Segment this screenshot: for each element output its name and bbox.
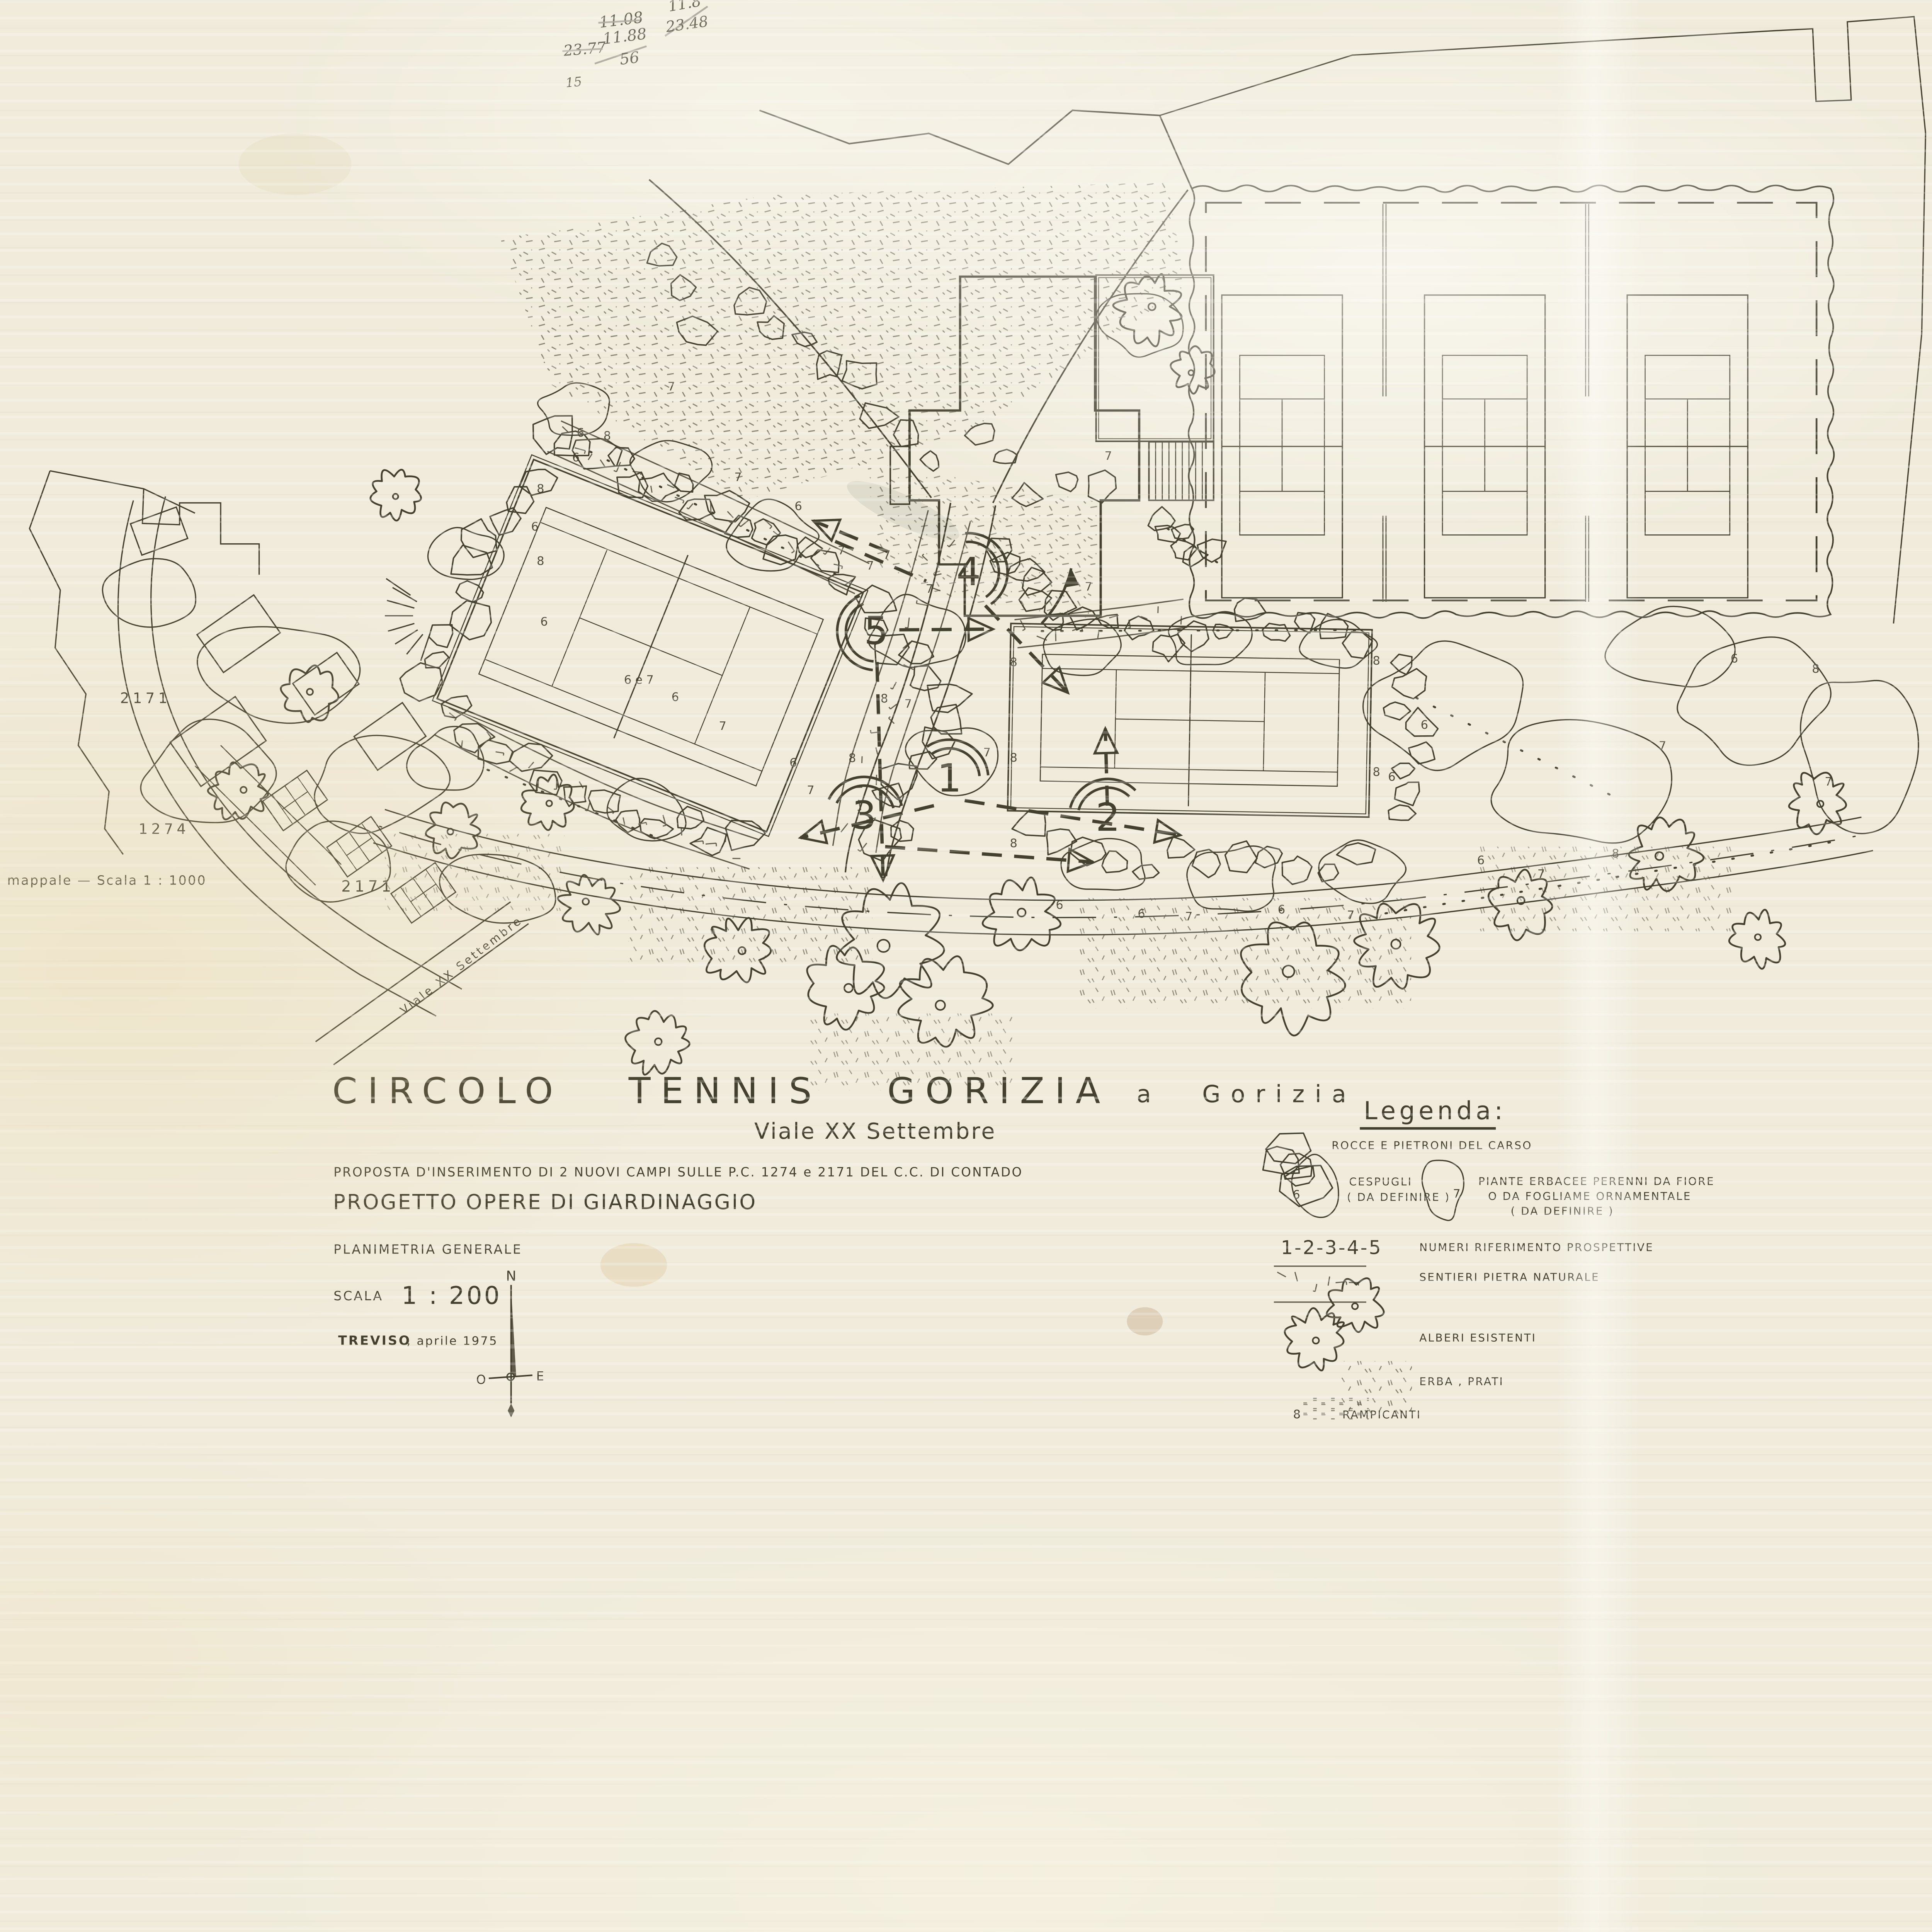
existing-tennis-courts xyxy=(1222,295,1748,598)
plant-ref-number: 8 xyxy=(537,554,544,568)
planting-bed xyxy=(1299,619,1377,668)
planting-bed xyxy=(141,719,276,822)
plant-ref-number: 8 xyxy=(1372,765,1380,779)
legend-erba: ERBA , PRATI xyxy=(1419,1375,1504,1388)
proposal-line: PROPOSTA D'INSERIMENTO DI 2 NUOVI CAMPI … xyxy=(333,1165,1023,1179)
plant-ref-number: 6 xyxy=(1138,907,1145,921)
scanned-site-plan: 12345 68686866 e 76767767787887888686676… xyxy=(0,0,1932,1932)
legend-sentieri: SENTIERI PIETRA NATURALE xyxy=(1419,1271,1600,1284)
plant-ref-number: 7 xyxy=(983,746,990,760)
tree-symbol xyxy=(281,665,338,722)
legend-heading: Legenda: xyxy=(1364,1097,1506,1125)
legend-num7: 7 xyxy=(1453,1187,1460,1201)
legend-piante2: O DA FOGLIAME ORNAMENTALE xyxy=(1488,1190,1691,1202)
legend-alberi: ALBERI ESISTENTI xyxy=(1419,1331,1536,1344)
plant-ref-number: 7 xyxy=(807,784,814,797)
planting-bed xyxy=(1801,680,1918,833)
subtitle: Viale XX Settembre xyxy=(754,1119,996,1144)
tree-symbol xyxy=(1285,1308,1344,1370)
plant-ref-number: 6 xyxy=(540,615,548,629)
inset-caption: mappale — Scala 1 : 1000 xyxy=(7,873,207,888)
plant-ref-number: 8 xyxy=(1372,654,1380,668)
planting-bed xyxy=(607,779,686,841)
plant-ref-number: 6 xyxy=(1056,898,1063,912)
city-label: TREVISO xyxy=(338,1333,411,1348)
plant-ref-number: 8 xyxy=(881,692,888,706)
ground-textures xyxy=(385,182,1732,1420)
legend-nums: 1-2-3-4-5 xyxy=(1281,1236,1383,1259)
plant-ref-number: 8 xyxy=(1010,656,1017,669)
legend-piante3: ( DA DEFINIRE ) xyxy=(1511,1204,1614,1217)
building xyxy=(131,507,188,555)
plant-ref-number: 8 xyxy=(1612,847,1619,861)
plant-ref-number: 7 xyxy=(734,471,742,484)
plant-ref-number: 6 xyxy=(672,690,679,704)
legend-cespugli: CESPUGLI xyxy=(1349,1175,1412,1188)
sightline-dashed xyxy=(965,801,1180,835)
compass-e: E xyxy=(536,1369,544,1383)
perspective-number: 2 xyxy=(1096,796,1120,840)
project-line: PROGETTO OPERE DI GIARDINAGGIO xyxy=(333,1190,757,1214)
plant-ref-number: 8 xyxy=(1010,837,1017,850)
plant-ref-number: 7 xyxy=(719,719,726,733)
legend-cespugli2: ( DA DEFINIRE ) xyxy=(1347,1191,1451,1204)
planting-bed xyxy=(102,559,196,627)
legend-numeri: NUMERI RIFERIMENTO PROSPETTIVE xyxy=(1419,1241,1654,1254)
legend-num8: 8 xyxy=(1293,1408,1301,1420)
legend-rocce: ROCCE E PIETRONI DEL CARSO xyxy=(1332,1139,1532,1151)
ray-hatch xyxy=(385,578,429,660)
plant-ref-number: 7 xyxy=(1085,580,1092,594)
plant-ref-number: 6 xyxy=(531,520,538,534)
pencil-note: 56 xyxy=(619,48,640,68)
plant-ref-number: 6 xyxy=(1731,652,1738,665)
pencil-notes: 23.7711.0811.88561511.823.48 xyxy=(562,0,709,90)
planting-bed xyxy=(1491,719,1672,843)
sightline-dashed xyxy=(899,629,993,630)
mini-court xyxy=(263,770,328,831)
parcel-number: 2171 xyxy=(341,878,395,895)
scale-value: 1 : 200 xyxy=(401,1281,502,1310)
pencil-note: 15 xyxy=(565,74,582,90)
planting-bed xyxy=(315,735,450,833)
plant-ref-number: 6 xyxy=(1421,718,1428,732)
legend-num6: 6 xyxy=(1293,1188,1300,1202)
main-title: CIRCOLO TENNIS GORIZIA xyxy=(332,1070,1111,1112)
plant-ref-number: 6 xyxy=(577,426,584,440)
planting-bed xyxy=(1319,840,1406,903)
tree-symbol xyxy=(558,875,620,934)
planting-bed xyxy=(197,627,360,723)
plant-ref-number: 7 xyxy=(668,380,675,394)
compass-o: O xyxy=(476,1372,486,1387)
tree-symbol xyxy=(625,1011,689,1075)
plant-ref-number: 7 xyxy=(1659,739,1666,753)
new-tennis-court-east xyxy=(1008,624,1372,817)
plan-type-line: PLANIMETRIA GENERALE xyxy=(333,1242,522,1257)
planting-bed xyxy=(726,499,819,571)
building xyxy=(197,595,280,673)
planting-bed xyxy=(428,527,504,579)
sightline-dashed xyxy=(1105,729,1107,806)
plant-ref-number: 7 xyxy=(905,697,912,711)
perspective-number: 3 xyxy=(852,794,876,838)
plant-ref-number: 7 xyxy=(838,544,845,557)
plant-ref-number: 6 xyxy=(1477,854,1485,867)
plant-ref-number: 6 xyxy=(789,756,797,770)
plant-ref-number: 7 xyxy=(1185,910,1192,923)
plant-ref-number: 7 xyxy=(1825,775,1832,789)
plant-ref-number: 8 xyxy=(604,429,611,443)
plant-ref-number: 7 xyxy=(1537,867,1545,881)
perspective-number: 5 xyxy=(864,609,888,653)
plant-ref-number: 6 xyxy=(1278,903,1285,917)
perspective-number: 1 xyxy=(937,756,961,801)
site-plan-drawing: 12345 68686866 e 76767767787887888686676… xyxy=(0,0,1932,1420)
plant-ref-number: 7 xyxy=(883,548,891,562)
tree-symbol xyxy=(371,470,421,521)
plant-ref-number: 8 xyxy=(1812,662,1819,676)
hedge-border xyxy=(1189,185,1834,618)
existing-courts-enclosure xyxy=(1189,185,1834,618)
perspective-number: 4 xyxy=(956,550,981,594)
fence-dashed xyxy=(1206,203,1816,600)
plant-ref-number: 7 xyxy=(926,582,933,596)
planting-bed xyxy=(1605,606,1735,687)
tree-symbol xyxy=(208,762,268,820)
new-tennis-court-west xyxy=(432,455,868,836)
plant-ref-number: 6 e 7 xyxy=(624,673,654,687)
plant-ref-number: 8 xyxy=(537,482,544,496)
tree-symbol xyxy=(983,878,1061,951)
plant-ref-number: 7 xyxy=(1105,449,1112,463)
building xyxy=(293,653,359,715)
plant-ref-number: 7 xyxy=(1347,908,1354,922)
plant-ref-number: 8 xyxy=(849,752,856,765)
pencil-note: 23.48 xyxy=(664,13,709,36)
compass-n: N xyxy=(506,1269,516,1284)
plant-ref-number: 7 xyxy=(866,559,874,573)
date-label: , aprile 1975 xyxy=(406,1335,498,1348)
plant-ref-number: 8 xyxy=(1010,751,1017,765)
parcel-number: 1274 xyxy=(139,820,190,837)
legend-rampicanti: RAMPICANTI xyxy=(1342,1408,1421,1420)
title-block: CIRCOLO TENNIS GORIZIA a Gorizia Viale X… xyxy=(332,1070,1357,1348)
parcel-number: 2171 xyxy=(120,689,171,706)
inset-street-label: Viale XX Settembre xyxy=(398,913,525,1017)
plant-ref-number: 6 xyxy=(794,500,802,513)
legend-piante1: PIANTE ERBACEE PERENNI DA FIORE xyxy=(1478,1175,1715,1187)
planting-bed xyxy=(1677,637,1831,765)
scale-label: SCALA xyxy=(333,1288,383,1303)
plant-ref-number: 6 xyxy=(1388,770,1395,784)
main-title-suffix: a Gorizia xyxy=(1137,1081,1357,1108)
plant-ref-number: 6 xyxy=(572,451,580,464)
planting-bed xyxy=(407,726,484,790)
tennis-court xyxy=(437,459,863,832)
